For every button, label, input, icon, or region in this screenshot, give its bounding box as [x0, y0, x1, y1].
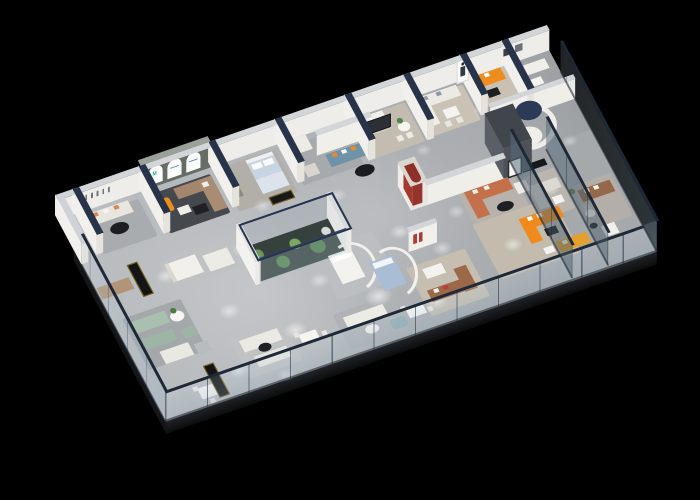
- pier-wall-face-end: [96, 233, 103, 255]
- pier-wall-face-end: [369, 138, 376, 160]
- terrarium-end-wall-face-end: [347, 228, 352, 254]
- brand-logo-teal: M: [153, 171, 157, 178]
- standee-figure-body: [460, 66, 465, 77]
- pier-wall-face-end: [427, 118, 434, 140]
- scene: M: [0, 0, 700, 500]
- floorplan: M: [55, 45, 657, 422]
- pier-wall-face-end: [164, 211, 171, 233]
- arch-text-line: [189, 158, 198, 162]
- pier-wall-face-end: [298, 161, 305, 183]
- pier-wall-face-end: [233, 185, 240, 207]
- arch-text-line: [170, 165, 179, 169]
